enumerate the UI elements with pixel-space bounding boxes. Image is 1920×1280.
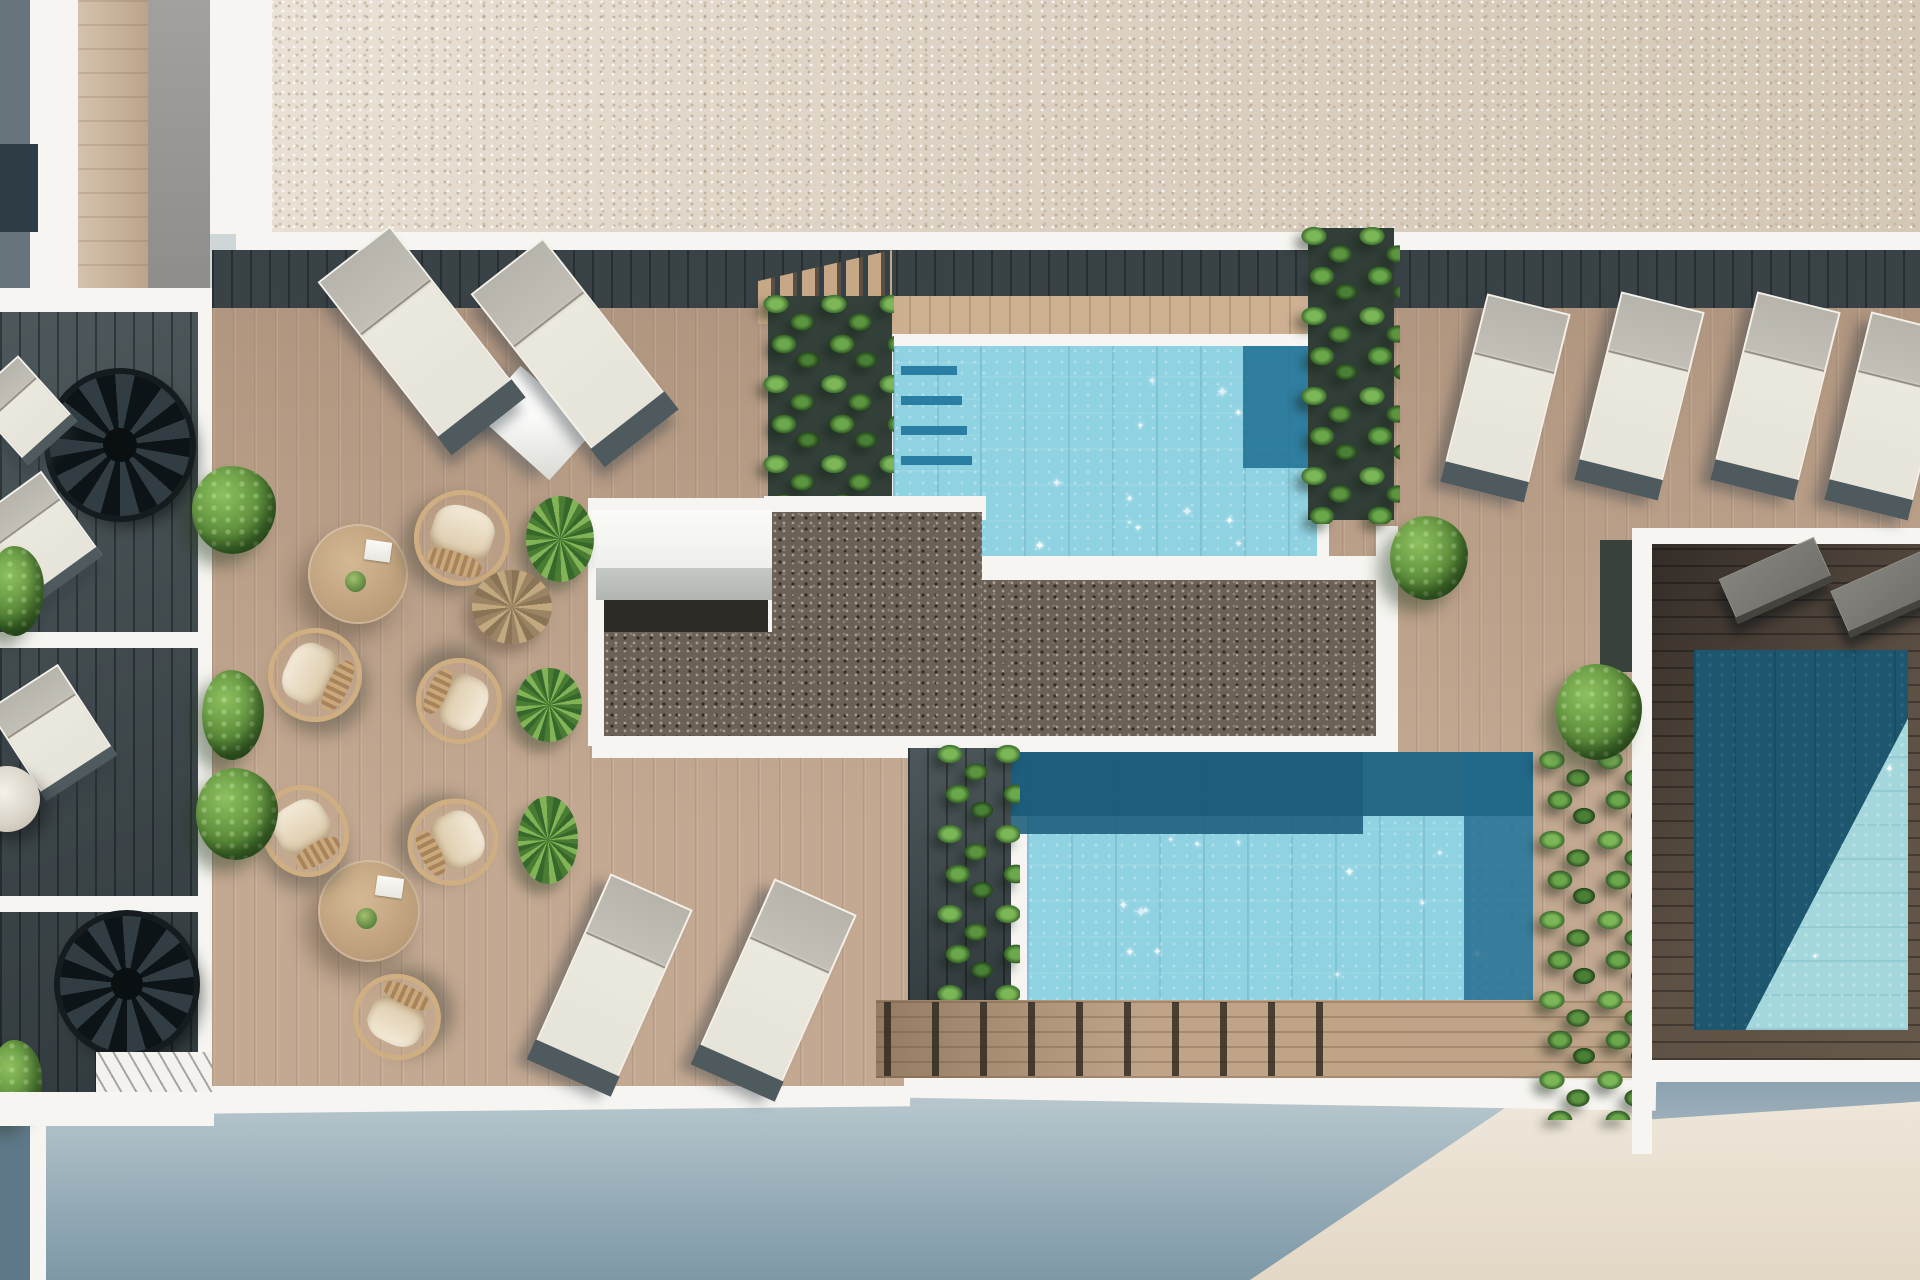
water-sparkle-icon: ✦ — [1181, 505, 1192, 518]
water-sparkle-icon: ✦ — [1168, 836, 1174, 843]
water-sparkle-icon: ✦ — [1234, 409, 1242, 419]
pool1-plants-right — [1300, 224, 1400, 524]
water-sparkle-icon: ✦ — [1052, 477, 1062, 489]
roof-gravel — [270, 0, 1920, 234]
pool1-step-1 — [901, 366, 957, 375]
skylight-box-top — [592, 510, 772, 568]
left-divider-1 — [0, 632, 212, 648]
right-terrace-wall-top — [1642, 528, 1920, 544]
table-upper — [308, 524, 408, 624]
pool2-plants-right — [1538, 748, 1646, 1120]
water-sparkle-icon: ✦ — [1234, 540, 1242, 550]
spiral-stair-upper — [50, 374, 190, 516]
water-sparkle-icon: ✦ — [1419, 899, 1427, 908]
bld-col-gray — [148, 0, 210, 290]
water-sparkle-icon: ✦ — [1235, 839, 1242, 847]
boardwalk-posts — [884, 1002, 1354, 1076]
water-sparkle-icon: ✦ — [1125, 495, 1134, 505]
pool1-step-2 — [901, 396, 962, 405]
water-sparkle-icon: ✦ — [1118, 901, 1128, 913]
pool1-step-4 — [901, 456, 972, 465]
gravel-plate-step — [976, 556, 1386, 582]
gravel-ext — [604, 632, 772, 736]
table-lower — [318, 860, 420, 962]
water-sparkle-icon: ✦ — [1134, 523, 1142, 532]
pool2-plants-left — [936, 742, 1020, 1032]
water-sparkle-icon: ✦ — [1216, 385, 1229, 400]
left-divider-2 — [0, 896, 212, 912]
water-sparkle-icon: ✦ — [1812, 953, 1819, 961]
gravel-left — [772, 512, 982, 736]
water-sparkle-icon: ✦ — [1135, 906, 1147, 921]
water-sparkle-icon: ✦ — [1125, 948, 1135, 959]
spiral-stair-lower — [60, 916, 194, 1052]
pool2-shade-left — [1011, 752, 1363, 834]
water-sparkle-icon: ✦ — [1034, 539, 1045, 552]
bld-window — [0, 144, 38, 232]
water-sparkle-icon: ✦ — [1885, 765, 1893, 775]
left-bottom-wall — [0, 1092, 214, 1126]
yucca-3 — [518, 796, 578, 884]
water-sparkle-icon: ✦ — [1142, 906, 1149, 914]
pool2-shade-right — [1464, 752, 1533, 1010]
water-sparkle-icon: ✦ — [1344, 866, 1354, 878]
water-sparkle-icon: ✦ — [1333, 971, 1341, 981]
water-sparkle-icon: ✦ — [1194, 840, 1201, 849]
water-sparkle-icon: ✦ — [1137, 422, 1144, 430]
skylight-box-side — [596, 568, 772, 600]
right-terrace-wall-left — [1632, 528, 1652, 1154]
bld-col-wood — [78, 0, 148, 290]
pool1-step-3 — [901, 426, 967, 435]
water-sparkle-icon: ✦ — [1153, 947, 1162, 958]
yucca-1 — [526, 496, 594, 582]
water-sparkle-icon: ✦ — [1148, 377, 1156, 387]
water-sparkle-icon: ✦ — [1126, 519, 1132, 526]
left-walk-band — [0, 288, 212, 314]
water-sparkle-icon: ✦ — [1436, 849, 1444, 858]
gravel-main — [982, 580, 1376, 736]
skylight-cast-shadow — [604, 600, 768, 632]
hedge-shadow-right — [1600, 540, 1634, 672]
palm-dry — [472, 570, 552, 644]
water-sparkle-icon: ✦ — [1225, 516, 1234, 527]
yucca-2 — [516, 668, 582, 742]
bld-col-white-2 — [210, 0, 272, 234]
stage: ✦✦✦✦✦✦✦✦✦✦✦✦✦✦✦✦✦✦✦✦✦✦✦✦✦✦✦✦✦✦✦✦✦✦✦✦✦✦✦✦… — [0, 0, 1920, 1280]
